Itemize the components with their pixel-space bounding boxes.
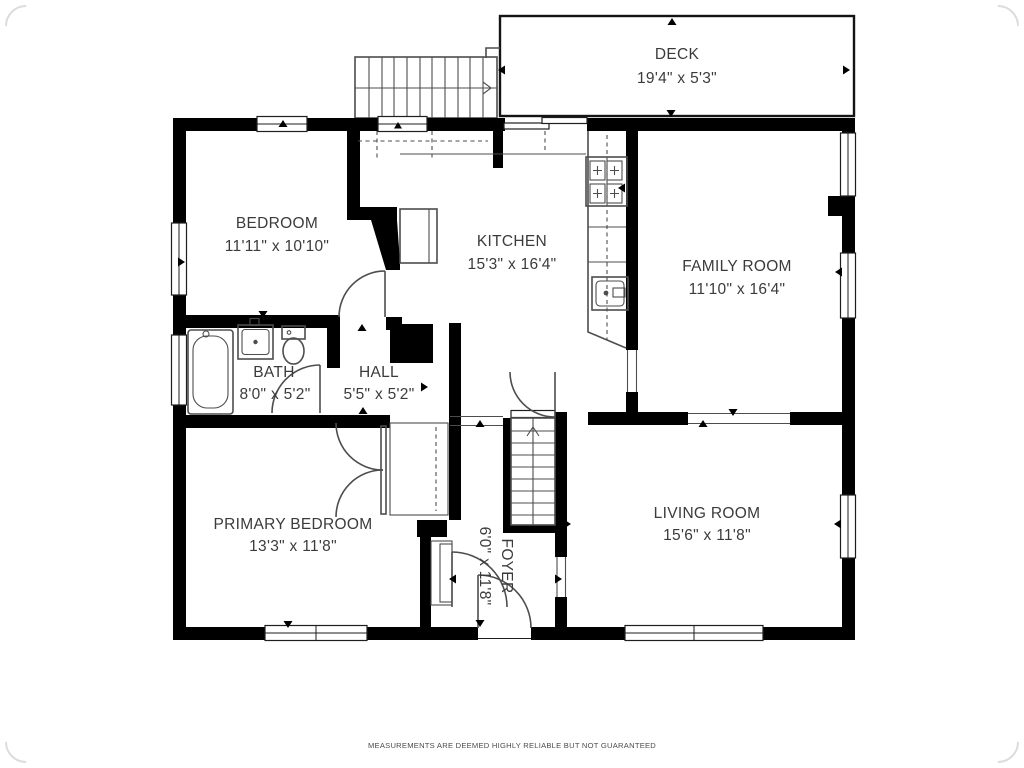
family-room-label: FAMILY ROOM: [682, 258, 792, 275]
floorplan-drawing: DECK 19'4" x 5'3" BEDROOM 11'11" x 10'10…: [0, 0, 1024, 768]
kitchen-dims: 15'3" x 16'4": [468, 256, 557, 273]
deck-dims: 19'4" x 5'3": [637, 70, 717, 87]
hall-label: HALL: [359, 364, 399, 381]
living-room-label: LIVING ROOM: [654, 505, 761, 522]
bedroom-dims: 11'11" x 10'10": [225, 238, 329, 255]
family-room-dims: 11'10" x 16'4": [689, 281, 786, 298]
deck-label: DECK: [655, 46, 700, 63]
floorplan-page: DECK 19'4" x 5'3" BEDROOM 11'11" x 10'10…: [0, 0, 1024, 768]
hall-dims: 5'5" x 5'2": [343, 386, 414, 403]
bath-label: BATH: [253, 364, 294, 381]
disclaimer-text: MEASUREMENTS ARE DEEMED HIGHLY RELIABLE …: [368, 741, 656, 750]
primary-bedroom-dims: 13'3" x 11'8": [249, 538, 337, 555]
sliding-door-panel: [542, 118, 587, 124]
primary-bedroom-label: PRIMARY BEDROOM: [214, 516, 373, 533]
foyer-label: FOYER: [498, 539, 515, 594]
living-room-dims: 15'6" x 11'8": [663, 527, 751, 544]
foyer-dims: 6'0" x 11'8": [476, 527, 493, 606]
bedroom-label: BEDROOM: [236, 215, 318, 232]
bath-dims: 8'0" x 5'2": [239, 386, 310, 403]
kitchen-label: KITCHEN: [477, 233, 547, 250]
